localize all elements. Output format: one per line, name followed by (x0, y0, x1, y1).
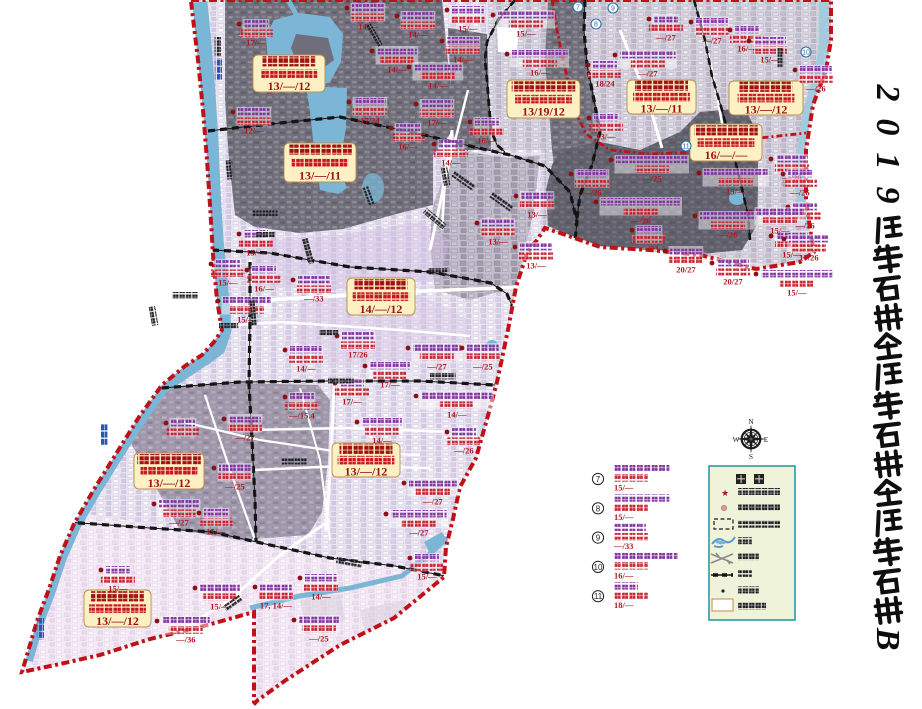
svg-text:15/—: 15/— (726, 187, 746, 197)
svg-text:17/26: 17/26 (348, 350, 367, 360)
svg-text:11: 11 (682, 144, 689, 151)
svg-text:17/—: 17/— (246, 38, 266, 48)
svg-text:8: 8 (594, 22, 598, 29)
svg-text:—/27: —/27 (426, 362, 447, 372)
svg-text:13/—: 13/— (527, 210, 547, 220)
svg-text:—/25: —/25 (308, 634, 328, 644)
svg-text:—/27: —/27 (422, 497, 443, 507)
svg-text:—/36: —/36 (175, 635, 195, 645)
svg-text:13/—/11: 13/—/11 (299, 169, 341, 183)
svg-text:—/27: —/27 (637, 69, 658, 79)
svg-text:—/26: —/26 (717, 230, 737, 240)
svg-text:—/15.4: —/15.4 (288, 411, 315, 421)
svg-text:—/25: —/25 (472, 362, 492, 372)
svg-text:14/—: 14/— (387, 65, 407, 75)
svg-text:13/—/12: 13/—/12 (96, 614, 139, 628)
svg-text:—/26: —/26 (789, 188, 809, 198)
svg-text:W: W (732, 435, 740, 444)
svg-text:10: 10 (594, 563, 603, 572)
svg-text:17/26: 17/26 (799, 253, 818, 263)
svg-text:13/—/12: 13/—/12 (268, 79, 311, 93)
svg-text:14/—: 14/— (441, 158, 461, 168)
svg-text:—/26: —/26 (805, 84, 825, 94)
svg-text:16/—/—: 16/—/— (705, 148, 749, 162)
svg-text:—/23: —/23 (638, 244, 658, 254)
svg-text:N: N (748, 417, 754, 426)
svg-text:17, 14/—: 17, 14/— (260, 601, 293, 611)
svg-text:10: 10 (802, 50, 810, 57)
svg-text:13/19/12: 13/19/12 (522, 105, 565, 119)
svg-text:14/—/12: 14/—/12 (360, 302, 403, 316)
svg-text:—/27: —/27 (655, 33, 676, 43)
svg-text:17/24: 17/24 (360, 116, 380, 126)
svg-text:—/33: —/33 (613, 541, 633, 551)
svg-text:13/—/12: 13/—/12 (345, 464, 388, 478)
svg-text:9: 9 (611, 6, 615, 13)
svg-text:15/—: 15/— (417, 572, 437, 582)
svg-text:14/—: 14/— (453, 55, 473, 65)
svg-text:16/—: 16/— (477, 136, 497, 146)
svg-text:15/—: 15/— (760, 55, 780, 65)
svg-text:7: 7 (576, 5, 580, 12)
svg-text:16/—: 16/— (530, 68, 550, 78)
svg-text:16/—: 16/— (398, 142, 418, 152)
svg-text:15/—: 15/— (458, 24, 478, 34)
svg-text:15/—: 15/— (614, 512, 634, 522)
svg-text:—/27: —/27 (408, 528, 429, 538)
svg-text:13/—: 13/— (596, 132, 616, 142)
svg-text:—/26: —/26 (453, 446, 473, 456)
svg-text:13/—/11: 13/—/11 (640, 101, 682, 115)
svg-text:E: E (764, 435, 769, 444)
svg-text:15/—: 15/— (218, 278, 238, 288)
svg-text:7: 7 (596, 475, 601, 484)
svg-text:9: 9 (869, 187, 906, 204)
svg-text:0: 0 (869, 119, 906, 136)
svg-text:13/—: 13/— (488, 237, 508, 247)
svg-text:—/25: —/25 (224, 482, 244, 492)
svg-text:14/—: 14/— (408, 30, 428, 40)
svg-text:15/—: 15/— (516, 29, 536, 39)
svg-text:—/27: —/27 (168, 518, 189, 528)
svg-text:16/—: 16/— (614, 571, 634, 581)
svg-text:17/—: 17/— (342, 397, 362, 407)
svg-text:9: 9 (596, 534, 601, 543)
svg-text:—/26: —/26 (630, 216, 650, 226)
svg-text:17/—: 17/— (380, 380, 400, 390)
svg-text:12/—: 12/— (244, 126, 264, 136)
svg-text:14/—: 14/— (296, 364, 316, 374)
svg-text:15/—: 15/— (770, 226, 790, 236)
svg-text:1: 1 (869, 153, 906, 170)
svg-text:15/—: 15/— (614, 483, 634, 493)
svg-text:17/—: 17/— (427, 118, 447, 128)
svg-text:18/24: 18/24 (595, 79, 615, 89)
svg-text:14/—: 14/— (372, 436, 392, 446)
svg-text:B: B (869, 627, 906, 651)
svg-text:2: 2 (869, 84, 906, 102)
svg-text:11: 11 (594, 592, 603, 601)
svg-text:13/—/12: 13/—/12 (745, 102, 788, 116)
svg-text:14/—: 14/— (428, 81, 448, 91)
svg-text:18/—: 18/— (614, 600, 634, 610)
svg-text:15/—: 15/— (787, 288, 807, 298)
svg-text:20/27: 20/27 (723, 277, 743, 287)
svg-text:—/25: —/25 (641, 174, 661, 184)
svg-text:—/27: —/27 (234, 433, 255, 443)
svg-text:13/—/12: 13/—/12 (148, 476, 191, 490)
svg-text:20/27: 20/27 (676, 265, 696, 275)
svg-text:14/—: 14/— (447, 410, 467, 420)
svg-text:16/—: 16/— (254, 284, 274, 294)
svg-text:13/—: 13/— (526, 261, 546, 271)
svg-text:—/26: —/26 (581, 188, 601, 198)
svg-text:15/—: 15/— (206, 527, 226, 537)
svg-text:—/33: —/33 (303, 294, 323, 304)
svg-text:15/—: 15/— (246, 248, 266, 258)
svg-text:8: 8 (596, 504, 601, 513)
svg-text:14/—: 14/— (311, 592, 331, 602)
svg-text:—/27: —/27 (701, 36, 722, 46)
svg-text:15/—: 15/— (108, 584, 128, 594)
svg-text:S: S (749, 452, 753, 461)
